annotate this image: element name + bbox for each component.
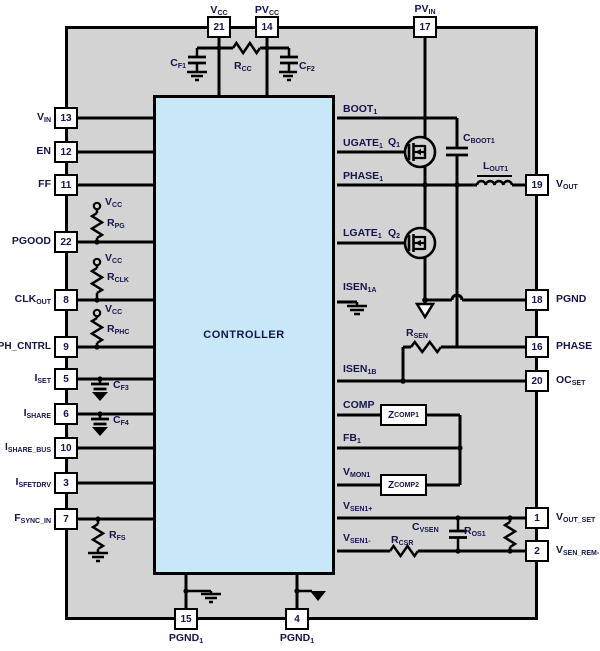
label-rsen: RSEN [406, 327, 428, 343]
pin-12-en: 12 [54, 141, 78, 163]
label-ocset: OCSET [556, 374, 585, 390]
mosfet-q2 [405, 228, 435, 258]
label-vcc-pullup-3: VCC [105, 303, 122, 319]
capacitor-cboot1 [446, 118, 468, 347]
label-vout: VOUT [556, 178, 578, 194]
label-vsen-rem: VSEN_REM- [556, 544, 599, 560]
pin-18-pgnd: 18 [525, 289, 549, 311]
label-pgnd1-left: PGND1 [156, 632, 216, 648]
resistor-ros1 [505, 522, 515, 547]
label-isfetdrv: ISFETDRV [16, 476, 51, 492]
ctrl-pin-comp: COMP [343, 399, 375, 415]
label-rphc: RPHC [107, 323, 129, 339]
pin-7-fsync-in: 7 [54, 508, 78, 530]
ground-plane-arrow [417, 304, 433, 317]
ground-symbol [187, 72, 207, 80]
label-cf4: CF4 [113, 414, 129, 430]
resistor-rsen [411, 342, 441, 352]
ctrl-pin-ugate1: UGATE1 [343, 137, 383, 153]
ctrl-pin-phase1: PHASE1 [343, 170, 383, 186]
ctrl-pin-vmon1: VMON1 [343, 466, 370, 482]
label-rpg: RPG [107, 217, 125, 233]
ground-symbol [88, 553, 108, 561]
pin-1-vout-set: 1 [525, 507, 549, 529]
rsen-phase-net [403, 342, 525, 381]
label-pvcc: PVCC [237, 4, 297, 20]
ctrl-pin-isen1a: ISEN1A [343, 281, 376, 297]
ground-symbol [347, 306, 367, 314]
resistor-rclk [92, 268, 102, 293]
pgnd-wire [425, 295, 525, 300]
ground-symbol [201, 594, 221, 602]
label-lout1: LOUT1 [483, 160, 508, 176]
label-q1: Q1 [388, 136, 400, 152]
pin-15-pgnd1: 15 [174, 608, 198, 630]
label-ros1: ROS1 [464, 525, 486, 541]
label-cf2: CF2 [299, 60, 315, 76]
label-fsync-in: FSYNC_IN [14, 512, 51, 528]
ground-triangle [92, 427, 108, 436]
label-vout-set: VOUT_SET [556, 511, 595, 527]
label-clkout: CLKOUT [15, 293, 51, 309]
zcomp1-block: ZCOMP1 [380, 404, 427, 426]
label-vcc-pullup-2: VCC [105, 252, 122, 268]
resistor-rpg [92, 213, 102, 238]
label-cf1: CF1 [170, 57, 186, 73]
pin-9-ph-cntrl: 9 [54, 336, 78, 358]
pin-5-iset: 5 [54, 368, 78, 390]
resistor-ros1-group [505, 518, 515, 551]
label-rclk: RCLK [107, 271, 129, 287]
label-phase: PHASE [556, 340, 592, 356]
label-pgnd1-right: PGND1 [267, 632, 327, 648]
vcc-terminal [94, 203, 100, 209]
pullup-rclk [92, 259, 102, 303]
label-ishare: ISHARE [24, 407, 51, 423]
wiring-layer [0, 0, 600, 651]
label-ff: FF [38, 178, 51, 194]
resistor-rfs [93, 524, 103, 549]
label-rfs: RFS [109, 529, 126, 545]
pin-22-pgood: 22 [54, 231, 78, 253]
inductor-lout1 [477, 176, 512, 185]
pin-6-ishare: 6 [54, 403, 78, 425]
pin-13-vin: 13 [54, 107, 78, 129]
capacitor-cf1 [187, 48, 207, 80]
zcomp2-block: ZCOMP2 [380, 474, 427, 496]
label-pvin: PVIN [395, 3, 455, 19]
pullup-rpg [92, 203, 102, 245]
label-ph-cntrl: PH_CNTRL [0, 340, 51, 356]
label-cf3: CF3 [113, 379, 129, 395]
pin-20-ocset: 20 [525, 370, 549, 392]
label-rcsr: RCSR [391, 534, 413, 550]
pin-11-ff: 11 [54, 174, 78, 196]
pin-4-pgnd1: 4 [285, 608, 309, 630]
label-cvsen: CVSEN [412, 521, 439, 537]
pin-17-pvin: 17 [413, 16, 437, 38]
label-en: EN [36, 145, 51, 161]
capacitor-cf2 [279, 48, 298, 80]
label-cboot1: CBOOT1 [463, 132, 495, 148]
label-pgood: PGOOD [12, 235, 51, 251]
resistor-rcc [233, 43, 260, 53]
label-vcc-pullup-1: VCC [105, 196, 122, 212]
pin-8-clkout: 8 [54, 289, 78, 311]
ctrl-pin-vsen1-minus: VSEN1- [343, 532, 371, 548]
pullup-rphc [92, 310, 102, 350]
label-rcc: RCC [234, 60, 252, 76]
mosfet-q1 [405, 137, 435, 167]
vcc-terminal [94, 259, 100, 265]
power-stage [337, 38, 525, 384]
pin-2-vsen-rem: 2 [525, 540, 549, 562]
ctrl-pin-boot1: BOOT1 [343, 103, 377, 119]
ctrl-pin-lgate1: LGATE1 [343, 227, 382, 243]
label-vin: VIN [37, 111, 51, 127]
label-iset: ISET [34, 372, 51, 388]
resistor-rfs-group [88, 516, 108, 561]
pin-10-ishare-bus: 10 [54, 437, 78, 459]
label-q2: Q2 [388, 227, 400, 243]
schematic-canvas: CONTROLLER [0, 0, 600, 651]
bottom-ground-stubs [183, 575, 326, 608]
pin-3-isfetdrv: 3 [54, 472, 78, 494]
isen1a-ground [337, 302, 367, 314]
ground-symbol [279, 72, 297, 80]
label-pgnd: PGND [556, 293, 586, 309]
ctrl-pin-fb1: FB1 [343, 432, 361, 448]
pin-16-phase: 16 [525, 336, 549, 358]
ground-triangle [92, 392, 108, 401]
ground-triangle [310, 591, 326, 601]
ctrl-pin-vsen1-plus: VSEN1+ [343, 500, 372, 516]
label-ishare-bus: ISHARE_BUS [5, 441, 51, 457]
ctrl-pin-isen1b: ISEN1B [343, 363, 376, 379]
resistor-rphc [92, 318, 102, 343]
pin-19-vout: 19 [525, 174, 549, 196]
vcc-terminal [94, 310, 100, 316]
